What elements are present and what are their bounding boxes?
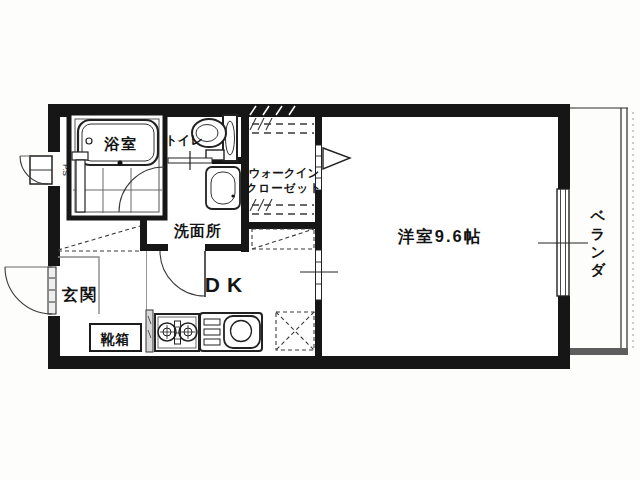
bathroom-label: 浴室 (104, 135, 138, 152)
toilet-label: トイレ (165, 133, 203, 147)
washbasin-icon (206, 167, 240, 209)
floorplan-drawing: 浴室 トイレ (0, 0, 640, 480)
room-bathroom: 浴室 (69, 113, 165, 218)
shoe-cabinet: 靴箱 (90, 324, 141, 351)
veranda-bottom-edge (570, 348, 628, 355)
walkin-closet-label-line2: クローゼット (246, 182, 322, 194)
wall-segment (558, 296, 570, 369)
stove-icon (155, 314, 199, 351)
wall-segment (48, 356, 570, 369)
wall-segment (315, 190, 322, 250)
shoe-cabinet-label: 靴箱 (101, 331, 131, 347)
wall-segment (315, 300, 322, 356)
wall-segment (241, 222, 322, 229)
svg-text:ベ: ベ (590, 208, 606, 224)
svg-text:ダ: ダ (591, 262, 607, 278)
entrance-label: 玄関 (61, 286, 98, 303)
wall-segment (558, 104, 570, 189)
sink-counter-icon (200, 313, 262, 351)
wall-segment (205, 244, 249, 251)
dining-kitchen-label: DK (205, 273, 249, 296)
wall-segment (48, 316, 60, 369)
svg-text:ン: ン (591, 244, 606, 260)
wall-segment (140, 220, 147, 251)
kitchen-side-panel (146, 310, 153, 352)
wall-segment (48, 186, 60, 266)
western-room-label: 洋室9.6帖 (397, 227, 482, 245)
pipe-space-label: P.S (61, 164, 70, 176)
washroom-label: 洗面所 (173, 222, 222, 239)
floorplan-page: 浴室 トイレ (0, 0, 640, 480)
wall-segment (48, 104, 60, 152)
svg-text:ラ: ラ (591, 226, 606, 242)
walkin-closet-label-line1: ウォークイン (249, 167, 319, 179)
wall-segment (315, 112, 322, 145)
